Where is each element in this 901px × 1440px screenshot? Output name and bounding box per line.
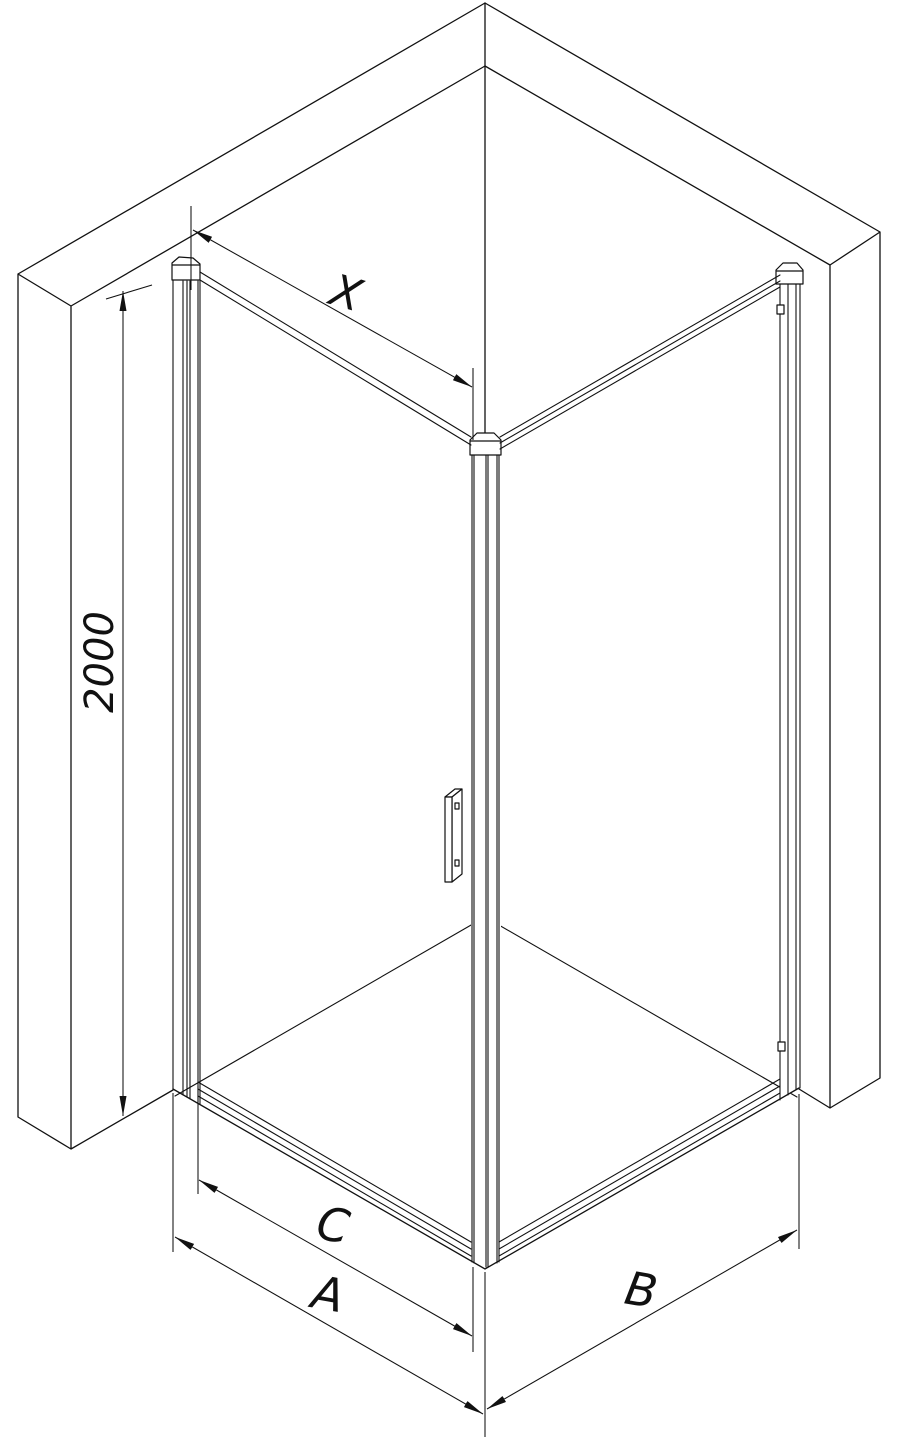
label-b: B — [621, 1261, 661, 1320]
wall-profile-edges — [173, 280, 200, 1104]
dim-a-line — [175, 1237, 483, 1414]
left-wall — [18, 3, 485, 1149]
label-a: A — [305, 1264, 348, 1323]
corner-post — [470, 433, 501, 1269]
floor-wall-junction-left — [175, 917, 485, 1096]
wall-profile-top-cap — [172, 257, 200, 280]
label-x: X — [322, 264, 368, 322]
dim-a-extension-lines — [173, 1093, 485, 1437]
handle-front-face — [445, 797, 452, 882]
side-frame-body — [780, 284, 800, 1100]
handle-screw-top — [455, 803, 459, 809]
right-wall — [485, 3, 880, 1108]
door-handle[interactable] — [445, 789, 462, 882]
wall-bracket-bottom — [778, 1042, 785, 1051]
dim-height-extension-tick — [106, 285, 152, 299]
door — [172, 257, 471, 1256]
floor-wall-junction-right — [485, 917, 797, 1097]
side-panel — [499, 263, 803, 1256]
walls — [18, 3, 880, 1149]
label-height-2000: 2000 — [77, 611, 123, 713]
wall-bracket-top — [777, 305, 784, 314]
shower-enclosure-diagram: X 2000 C A B — [0, 0, 901, 1440]
dim-b-line — [487, 1230, 797, 1409]
dim-x-extension-lines — [191, 206, 473, 440]
dimension-labels: X 2000 C A B — [77, 264, 661, 1323]
corner-post-top-cap — [470, 433, 501, 455]
label-c: C — [313, 1196, 354, 1255]
side-panel-bottom-rail — [499, 1079, 780, 1256]
handle-screw-bottom — [455, 860, 459, 866]
diagram-canvas: X 2000 C A B — [0, 0, 901, 1440]
side-panel-top-rail — [500, 275, 780, 449]
